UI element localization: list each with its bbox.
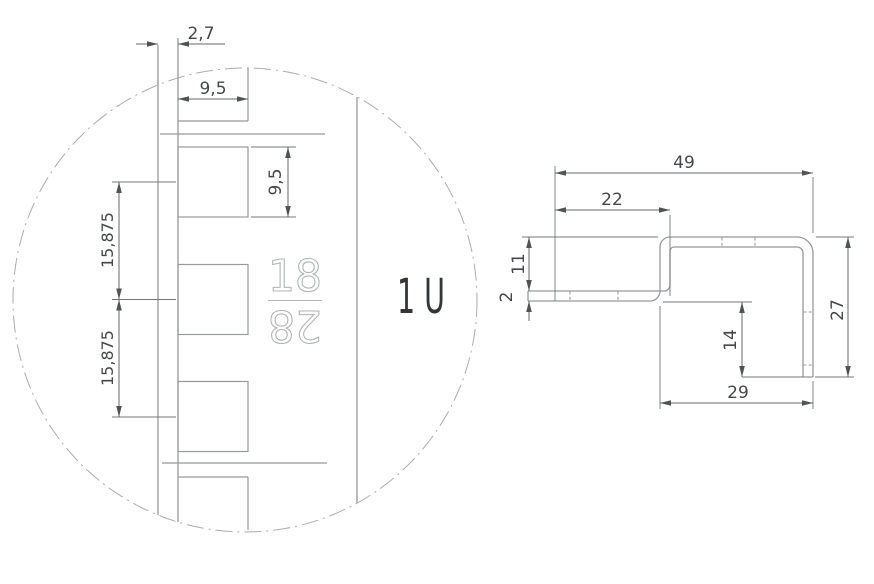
arrow bbox=[845, 366, 851, 377]
dim-inner-leg: 14 bbox=[721, 329, 741, 351]
arrow bbox=[116, 182, 122, 193]
square-hole-3 bbox=[178, 382, 248, 452]
square-hole-2 bbox=[178, 265, 248, 335]
arrow bbox=[285, 147, 291, 158]
arrow bbox=[739, 366, 745, 377]
dim-step-height: 11 bbox=[509, 253, 529, 275]
dim-hole-height: 9,5 bbox=[266, 168, 286, 195]
arrow bbox=[526, 280, 532, 291]
arrow bbox=[660, 400, 671, 406]
detail-dimensions: 2,7 9,5 9,5 15,875 15,875 bbox=[98, 24, 296, 417]
dim-pitch-upper: 15,875 bbox=[98, 212, 117, 268]
unit-label: 1 U bbox=[397, 269, 445, 325]
dim-thickness: 2 bbox=[497, 292, 517, 303]
dim-flange-offset: 2,7 bbox=[187, 24, 214, 44]
dim-overall-width: 49 bbox=[673, 153, 695, 173]
arrow bbox=[237, 96, 248, 102]
arrow bbox=[802, 170, 813, 176]
dim-overall-height: 27 bbox=[828, 299, 848, 321]
rail-stamp: 18 28 bbox=[268, 251, 322, 351]
arrow bbox=[555, 170, 566, 176]
arrow bbox=[147, 41, 158, 47]
stamp-number-top: 18 bbox=[268, 251, 322, 302]
profile-dimensions: 49 22 11 2 14 27 bbox=[497, 153, 854, 409]
arrow bbox=[526, 301, 532, 312]
dim-hole-width: 9,5 bbox=[199, 79, 226, 99]
arrow bbox=[739, 302, 745, 313]
technical-drawing-canvas: 18 28 1 U 2,7 9,5 9,5 bbox=[0, 0, 874, 584]
arrow bbox=[116, 406, 122, 417]
profile-inner-surface bbox=[528, 247, 803, 377]
detail-view: 18 28 1 U 2,7 9,5 9,5 bbox=[13, 24, 477, 532]
arrow bbox=[845, 237, 851, 248]
arrow bbox=[285, 206, 291, 217]
dim-pitch-lower: 15,875 bbox=[98, 330, 117, 386]
profile-view: 49 22 11 2 14 27 bbox=[497, 153, 854, 409]
profile-geometry bbox=[528, 237, 813, 377]
dim-bottom-width: 29 bbox=[727, 383, 749, 403]
arrow bbox=[802, 400, 813, 406]
stamp-number-bottom: 28 bbox=[268, 300, 322, 351]
arrow bbox=[116, 289, 122, 300]
rail-geometry bbox=[158, 38, 357, 530]
arrow bbox=[526, 237, 532, 248]
arrow bbox=[116, 300, 122, 311]
dim-upper-offset: 22 bbox=[601, 190, 623, 210]
arrow bbox=[178, 96, 189, 102]
arrow bbox=[555, 207, 566, 213]
square-hole-1 bbox=[178, 147, 248, 217]
arrow bbox=[659, 207, 670, 213]
